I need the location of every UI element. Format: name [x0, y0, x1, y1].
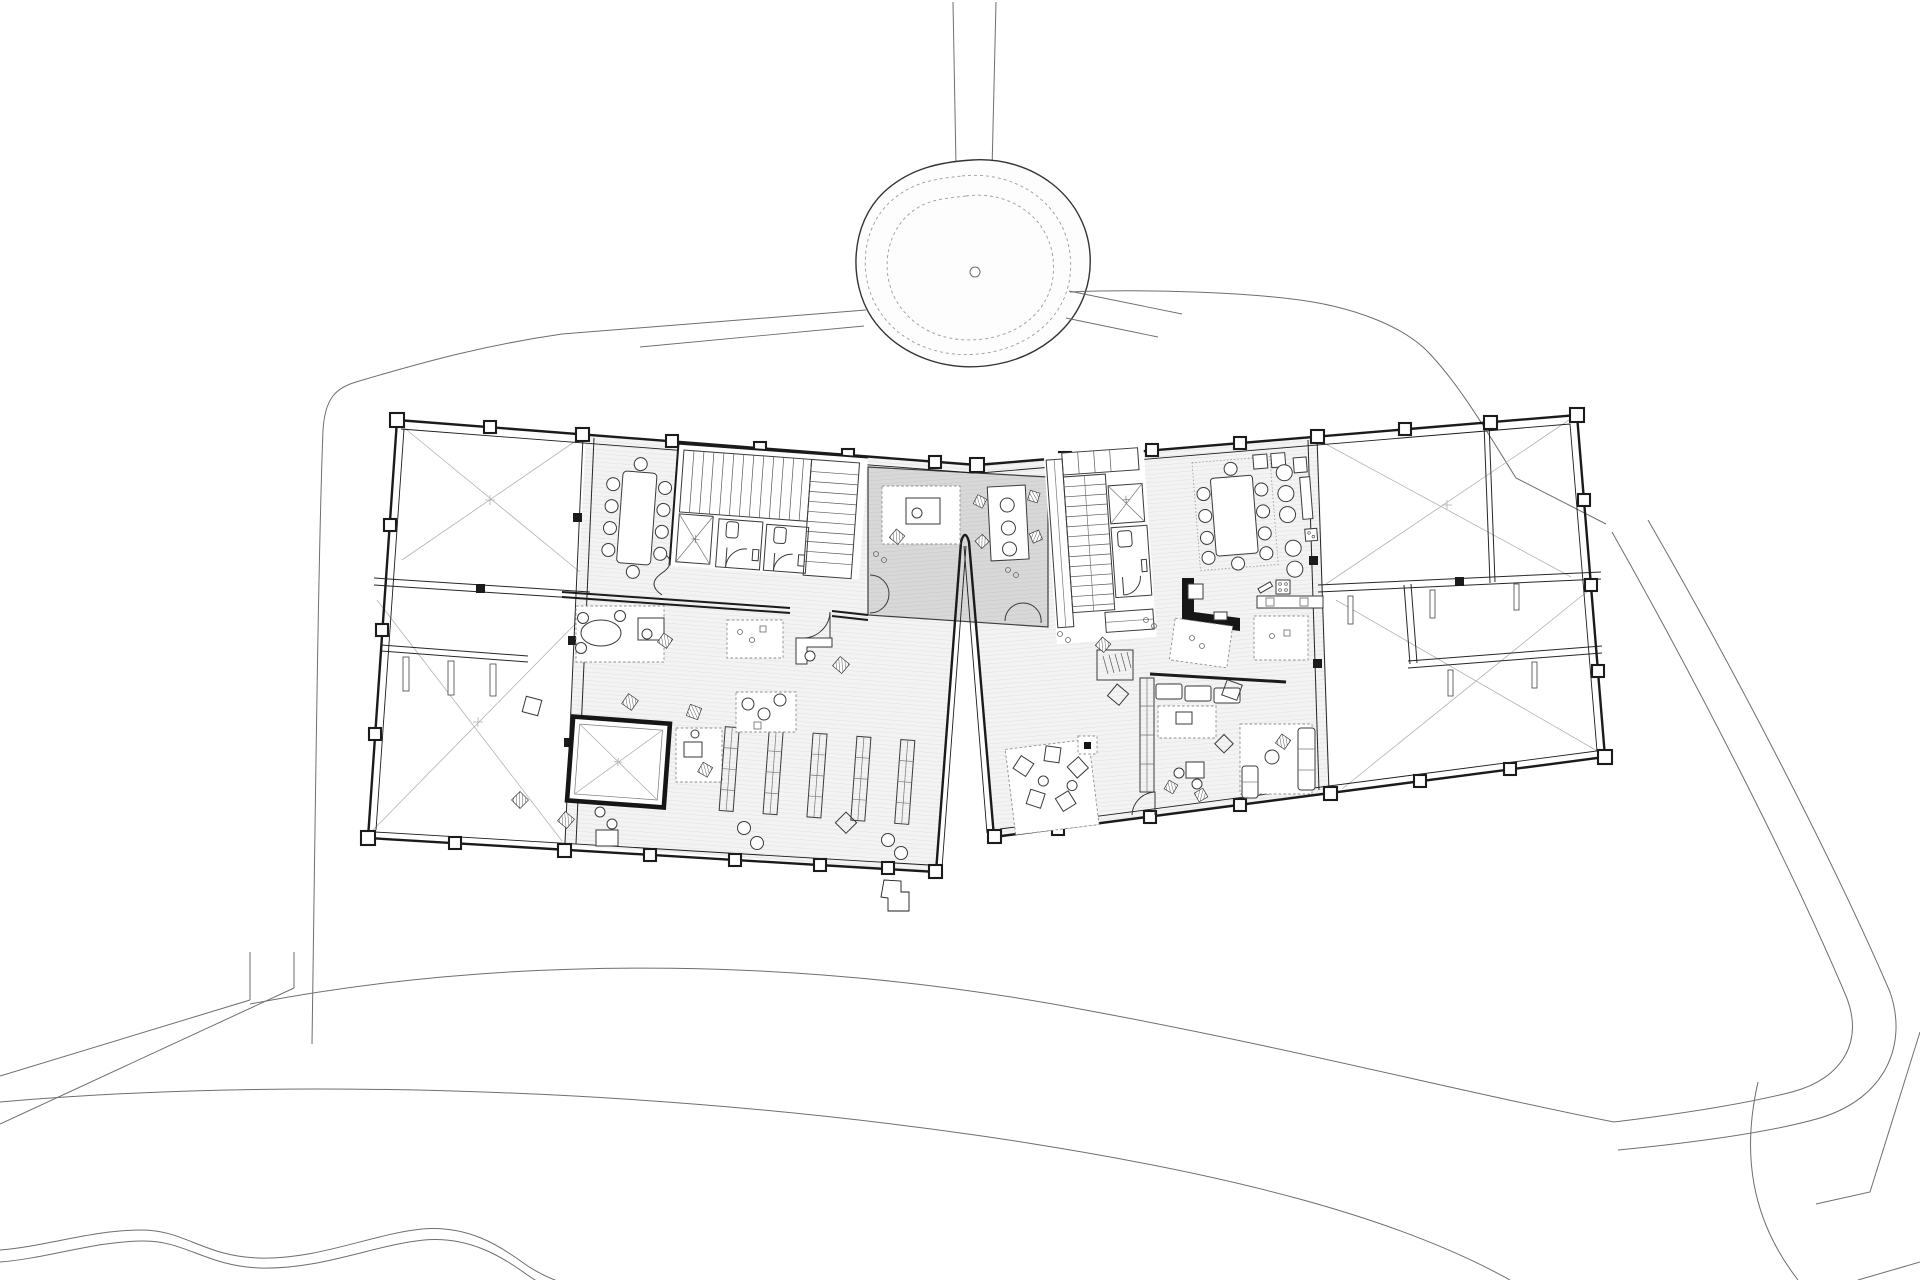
hob — [1276, 580, 1290, 594]
toilet — [773, 527, 786, 544]
rug — [1169, 618, 1232, 668]
skylight-void — [567, 717, 670, 808]
pouf — [595, 807, 605, 817]
plan-canvas — [0, 0, 1920, 1280]
diagonal-path-southeast — [1618, 520, 1896, 1150]
chair — [805, 651, 815, 661]
desk — [684, 742, 702, 757]
pouf — [895, 847, 908, 860]
chair — [912, 508, 922, 518]
toilet — [726, 521, 739, 538]
planter — [1348, 596, 1353, 624]
work-table — [987, 485, 1029, 561]
pouf — [607, 819, 617, 829]
toilet — [1117, 530, 1132, 547]
side-table — [1265, 750, 1279, 764]
plaza-edge-southeast — [1751, 1082, 1798, 1280]
sofa — [1298, 728, 1315, 790]
planter — [1532, 662, 1537, 688]
floor-plan-drawing — [0, 0, 1920, 1280]
pouf — [751, 837, 764, 850]
desk — [906, 498, 940, 524]
sink — [1214, 612, 1227, 620]
meandering-path-southwest — [0, 1229, 670, 1280]
meandering-path-southwest — [0, 1240, 660, 1280]
site-line — [640, 326, 864, 347]
rug — [1254, 616, 1308, 660]
site-line — [1066, 318, 1158, 337]
diagonal-path-southeast — [1612, 532, 1852, 1122]
coffee-table — [1176, 712, 1192, 724]
floor-hatch-marker — [1078, 736, 1097, 754]
chair — [615, 611, 626, 622]
pouf — [738, 822, 751, 835]
north-path — [953, 2, 956, 166]
chair — [576, 643, 587, 654]
west-stair-core — [670, 444, 868, 580]
pouf — [742, 698, 754, 710]
pedestrian-loop-lower — [0, 1089, 1510, 1280]
east-stair-core — [1044, 447, 1157, 644]
site-line — [1069, 291, 1182, 314]
plaza-edge-southeast — [1858, 1262, 1920, 1280]
sink — [752, 549, 759, 560]
kitchen-island — [1188, 584, 1203, 599]
planter — [1514, 584, 1519, 610]
pouf — [774, 694, 786, 706]
path-branch-west — [0, 1000, 250, 1076]
side-table — [522, 696, 542, 716]
tree-canopy — [856, 160, 1090, 367]
pouf — [758, 708, 770, 720]
plaza-edge-southeast — [1816, 1032, 1920, 1204]
rug — [727, 620, 783, 658]
planter — [490, 664, 496, 696]
chair — [642, 629, 652, 639]
oval-table — [581, 620, 621, 646]
chair — [691, 730, 699, 738]
pedestrian-loop-upper — [250, 968, 1614, 1122]
entrance-stub — [881, 880, 909, 911]
planter — [1430, 590, 1435, 618]
path-branch-west — [0, 988, 294, 1124]
site-layer — [0, 2, 1920, 1280]
desk — [596, 830, 618, 846]
sink — [1141, 559, 1147, 571]
planter — [403, 657, 409, 691]
planter — [448, 661, 454, 695]
chair — [578, 613, 589, 624]
north-path — [992, 2, 996, 170]
planter — [1448, 670, 1453, 696]
sink — [798, 555, 805, 566]
pouf — [882, 834, 895, 847]
